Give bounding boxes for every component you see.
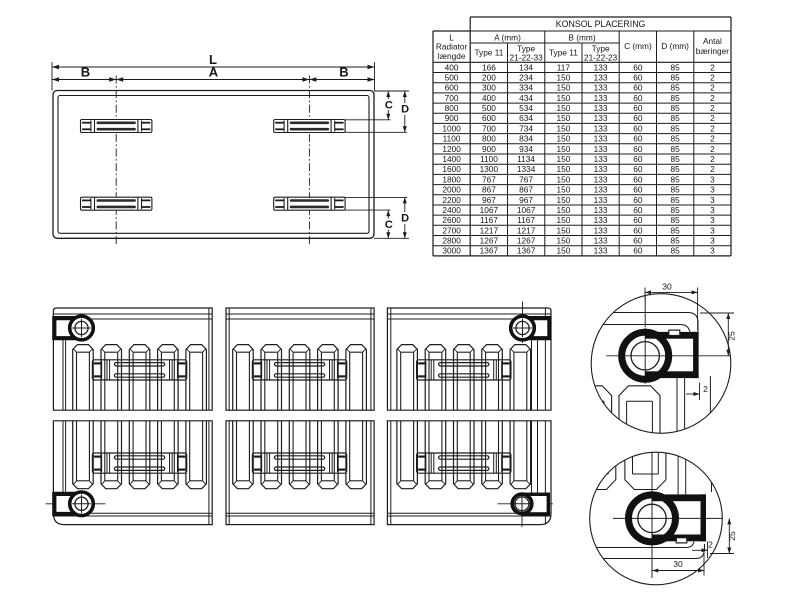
svg-text:434: 434 (519, 93, 533, 103)
svg-text:D: D (401, 104, 409, 116)
svg-text:834: 834 (519, 134, 533, 144)
svg-text:C: C (385, 100, 393, 112)
svg-text:150: 150 (556, 83, 570, 93)
svg-text:3: 3 (710, 246, 715, 256)
svg-text:300: 300 (482, 83, 496, 93)
svg-text:150: 150 (556, 236, 570, 246)
svg-text:150: 150 (556, 103, 570, 113)
svg-text:3: 3 (710, 174, 715, 184)
svg-text:133: 133 (594, 246, 608, 256)
svg-text:60: 60 (633, 236, 643, 246)
svg-text:133: 133 (594, 93, 608, 103)
svg-text:B: B (339, 65, 348, 80)
svg-text:1167: 1167 (517, 215, 535, 225)
svg-text:734: 734 (519, 123, 533, 133)
svg-text:2: 2 (710, 123, 715, 133)
svg-text:133: 133 (594, 144, 608, 154)
svg-text:2: 2 (710, 134, 715, 144)
svg-text:150: 150 (556, 154, 570, 164)
svg-text:200: 200 (482, 73, 496, 83)
svg-text:60: 60 (633, 134, 643, 144)
svg-text:1100: 1100 (480, 154, 498, 164)
svg-text:25: 25 (727, 331, 737, 341)
svg-text:1067: 1067 (480, 205, 499, 215)
svg-text:150: 150 (556, 185, 570, 195)
svg-text:3: 3 (710, 185, 715, 195)
svg-text:2: 2 (710, 113, 715, 123)
svg-text:1134: 1134 (517, 154, 535, 164)
svg-text:85: 85 (670, 236, 680, 246)
svg-text:133: 133 (594, 134, 608, 144)
svg-text:133: 133 (594, 215, 608, 225)
svg-text:85: 85 (670, 164, 680, 174)
svg-text:534: 534 (519, 103, 533, 113)
svg-text:400: 400 (445, 62, 459, 72)
svg-text:900: 900 (482, 144, 496, 154)
svg-text:60: 60 (633, 73, 643, 83)
svg-text:1400: 1400 (442, 154, 461, 164)
svg-text:85: 85 (670, 113, 680, 123)
svg-text:A (mm): A (mm) (494, 32, 521, 42)
svg-text:150: 150 (556, 144, 570, 154)
svg-text:60: 60 (633, 83, 643, 93)
svg-text:Type 11: Type 11 (474, 48, 503, 58)
svg-text:2: 2 (708, 540, 713, 550)
svg-text:85: 85 (670, 123, 680, 133)
svg-text:934: 934 (519, 144, 533, 154)
svg-text:B: B (81, 65, 90, 80)
svg-text:60: 60 (633, 62, 643, 72)
svg-text:2: 2 (710, 73, 715, 83)
svg-text:85: 85 (670, 215, 680, 225)
svg-text:Type 11: Type 11 (549, 48, 578, 58)
svg-text:150: 150 (556, 113, 570, 123)
svg-text:60: 60 (633, 195, 643, 205)
svg-text:1167: 1167 (480, 215, 498, 225)
svg-text:133: 133 (594, 174, 608, 184)
svg-text:1800: 1800 (442, 174, 461, 184)
svg-text:bæringer: bæringer (696, 46, 729, 56)
svg-text:85: 85 (670, 185, 680, 195)
svg-text:150: 150 (556, 246, 570, 256)
svg-text:B (mm): B (mm) (568, 32, 595, 42)
svg-text:133: 133 (594, 113, 608, 123)
svg-text:133: 133 (594, 103, 608, 113)
svg-text:2: 2 (703, 384, 708, 394)
svg-text:60: 60 (633, 205, 643, 215)
svg-text:133: 133 (594, 205, 608, 215)
svg-text:60: 60 (633, 185, 643, 195)
svg-text:85: 85 (670, 73, 680, 83)
svg-text:30: 30 (673, 559, 683, 569)
svg-text:2800: 2800 (442, 236, 461, 246)
svg-text:1300: 1300 (480, 164, 499, 174)
svg-text:85: 85 (670, 62, 680, 72)
svg-text:2: 2 (710, 83, 715, 93)
svg-text:85: 85 (670, 154, 680, 164)
svg-text:1600: 1600 (442, 164, 461, 174)
svg-text:334: 334 (519, 83, 533, 93)
svg-text:133: 133 (594, 195, 608, 205)
svg-text:967: 967 (482, 195, 496, 205)
svg-text:85: 85 (670, 83, 680, 93)
svg-text:150: 150 (556, 205, 570, 215)
svg-text:133: 133 (594, 73, 608, 83)
svg-text:634: 634 (519, 113, 533, 123)
svg-text:60: 60 (633, 246, 643, 256)
svg-text:166: 166 (482, 62, 496, 72)
svg-text:800: 800 (482, 134, 496, 144)
svg-text:1367: 1367 (480, 246, 499, 256)
svg-text:2000: 2000 (442, 185, 461, 195)
svg-text:60: 60 (633, 154, 643, 164)
svg-text:25: 25 (727, 531, 737, 541)
svg-text:1267: 1267 (480, 236, 499, 246)
svg-text:85: 85 (670, 144, 680, 154)
svg-text:2: 2 (710, 154, 715, 164)
svg-text:3: 3 (710, 195, 715, 205)
svg-text:133: 133 (594, 62, 608, 72)
svg-text:1067: 1067 (517, 205, 536, 215)
svg-text:1217: 1217 (517, 225, 536, 235)
svg-text:85: 85 (670, 205, 680, 215)
svg-text:60: 60 (633, 103, 643, 113)
svg-text:3: 3 (710, 205, 715, 215)
svg-text:længde: længde (438, 51, 466, 61)
svg-text:133: 133 (594, 185, 608, 195)
svg-text:3000: 3000 (442, 246, 461, 256)
svg-text:C (mm): C (mm) (624, 41, 652, 51)
svg-text:150: 150 (556, 225, 570, 235)
svg-text:2400: 2400 (442, 205, 461, 215)
svg-text:700: 700 (445, 93, 459, 103)
svg-text:134: 134 (519, 62, 533, 72)
svg-text:85: 85 (670, 246, 680, 256)
svg-text:1100: 1100 (443, 134, 461, 144)
svg-text:150: 150 (556, 73, 570, 83)
svg-text:2: 2 (710, 144, 715, 154)
svg-text:1367: 1367 (517, 246, 536, 256)
svg-text:60: 60 (633, 123, 643, 133)
svg-text:1334: 1334 (517, 164, 536, 174)
svg-text:150: 150 (556, 164, 570, 174)
svg-text:3: 3 (710, 215, 715, 225)
svg-text:1267: 1267 (517, 236, 536, 246)
svg-text:60: 60 (633, 225, 643, 235)
svg-text:D: D (401, 213, 409, 225)
svg-text:2700: 2700 (442, 225, 461, 235)
svg-text:85: 85 (670, 195, 680, 205)
svg-text:1200: 1200 (442, 144, 461, 154)
svg-text:C: C (385, 219, 393, 231)
svg-text:2: 2 (710, 62, 715, 72)
svg-text:767: 767 (482, 174, 496, 184)
svg-text:150: 150 (556, 134, 570, 144)
svg-text:150: 150 (556, 93, 570, 103)
svg-text:85: 85 (670, 174, 680, 184)
svg-text:60: 60 (633, 215, 643, 225)
svg-text:60: 60 (633, 93, 643, 103)
svg-text:85: 85 (670, 103, 680, 113)
svg-text:1000: 1000 (442, 123, 461, 133)
svg-text:3: 3 (710, 236, 715, 246)
svg-text:21-22-23: 21-22-23 (584, 53, 618, 63)
svg-text:150: 150 (556, 215, 570, 225)
svg-text:60: 60 (633, 164, 643, 174)
svg-text:867: 867 (482, 185, 496, 195)
svg-text:60: 60 (633, 113, 643, 123)
svg-text:3: 3 (710, 225, 715, 235)
svg-text:133: 133 (594, 154, 608, 164)
svg-text:133: 133 (594, 123, 608, 133)
svg-text:500: 500 (445, 73, 459, 83)
svg-text:150: 150 (556, 195, 570, 205)
svg-text:85: 85 (670, 134, 680, 144)
svg-text:867: 867 (519, 185, 533, 195)
svg-text:133: 133 (594, 83, 608, 93)
svg-text:600: 600 (445, 83, 459, 93)
svg-text:234: 234 (519, 73, 533, 83)
svg-text:133: 133 (594, 164, 608, 174)
svg-text:2: 2 (710, 103, 715, 113)
svg-text:A: A (209, 65, 219, 80)
svg-text:400: 400 (482, 93, 496, 103)
svg-text:600: 600 (482, 113, 496, 123)
svg-text:21-22-33: 21-22-33 (509, 53, 543, 63)
svg-text:1217: 1217 (480, 225, 499, 235)
svg-text:2600: 2600 (442, 215, 461, 225)
svg-text:133: 133 (594, 236, 608, 246)
svg-text:30: 30 (662, 282, 672, 292)
svg-text:767: 767 (519, 174, 533, 184)
svg-text:60: 60 (633, 174, 643, 184)
svg-text:85: 85 (670, 93, 680, 103)
svg-text:KONSOL PLACERING: KONSOL PLACERING (556, 19, 646, 29)
svg-text:2200: 2200 (442, 195, 461, 205)
svg-text:Antal: Antal (703, 36, 722, 46)
svg-text:117: 117 (557, 62, 571, 72)
svg-text:60: 60 (633, 144, 643, 154)
svg-text:967: 967 (519, 195, 533, 205)
svg-text:133: 133 (594, 225, 608, 235)
svg-text:85: 85 (670, 225, 680, 235)
svg-text:D (mm): D (mm) (661, 41, 689, 51)
svg-text:500: 500 (482, 103, 496, 113)
svg-text:800: 800 (445, 103, 459, 113)
svg-text:2: 2 (710, 93, 715, 103)
svg-text:150: 150 (556, 174, 570, 184)
svg-text:2: 2 (710, 164, 715, 174)
svg-text:700: 700 (482, 123, 496, 133)
svg-text:900: 900 (445, 113, 459, 123)
svg-text:150: 150 (556, 123, 570, 133)
